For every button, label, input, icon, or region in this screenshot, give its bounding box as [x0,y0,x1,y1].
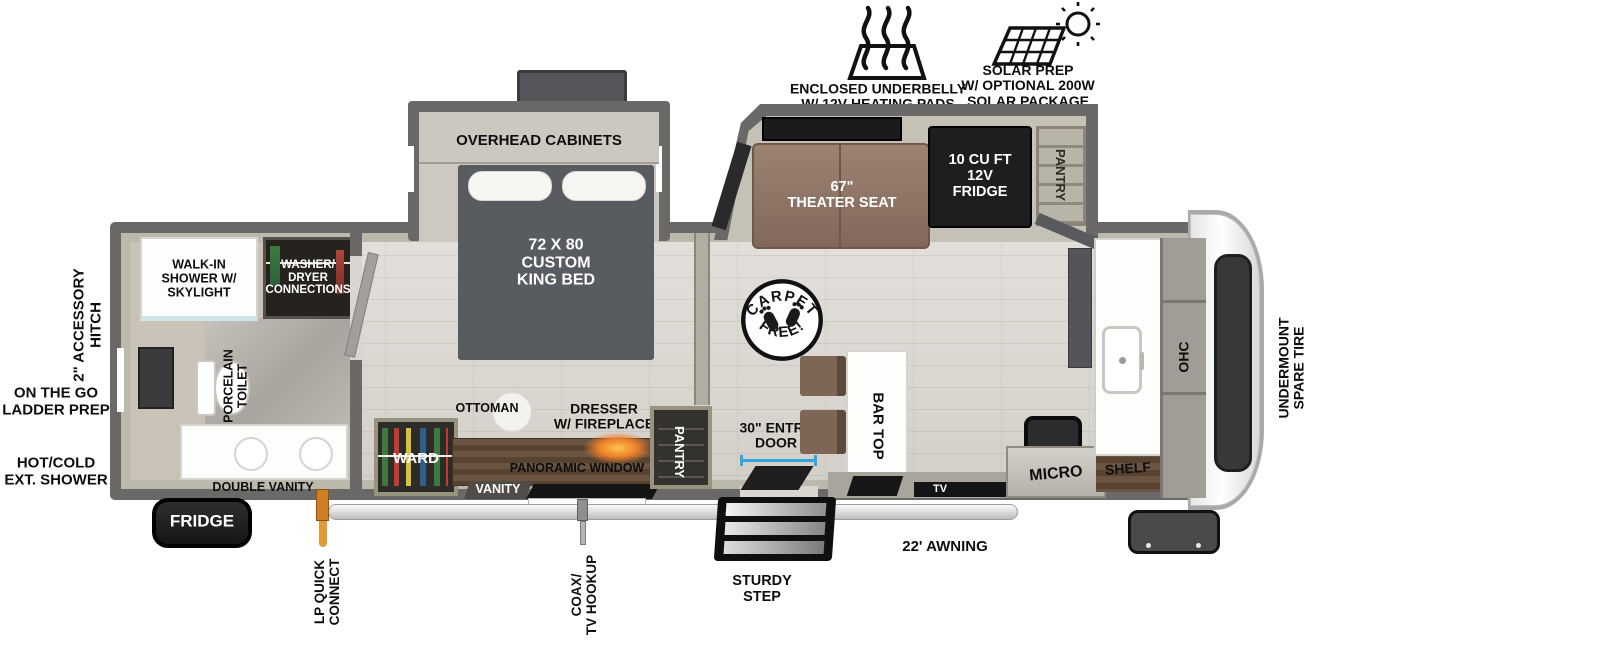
awning-label: 22' AWNING [902,539,988,556]
rear-window [117,348,124,412]
pillow-left [468,171,552,201]
walk-in-shower-label: WALK-IN SHOWER W/ SKYLIGHT [162,258,237,299]
sturdy-step-label: STURDY STEP [732,574,792,606]
theater-seat-label: 67" THEATER SEAT [787,180,896,212]
overhead-cabinets-label: OVERHEAD CABINETS [456,133,622,150]
bar-stool-2 [800,410,846,454]
ladder-prep-label: ON THE GO LADDER PREP [2,386,110,419]
toilet-tank [196,360,216,416]
entry-dim-tick-left [740,455,743,466]
accessory-hitch-label: 2" ACCESSORY HITCH [72,268,105,382]
ohc-divider-2 [1160,392,1206,395]
heating-pads-icon [828,4,938,82]
fireplace-glow [583,432,653,464]
slide-window-left [408,146,414,192]
tv-label: TV [933,483,947,495]
theater-slide-window-top [762,117,902,141]
floorplan-canvas: ENCLOSED UNDERBELLY W/ 12V HEATING PADS … [0,0,1600,649]
vanity-desk [526,484,660,499]
fridge-12v-label: 10 CU FT 12V FRIDGE [949,153,1012,201]
step-tread-2 [725,522,826,535]
washer-dryer-label: WASHER/ DRYER CONNECTIONS [266,259,351,297]
vanity-sink-right [299,437,333,471]
dresser-fireplace-label: DRESSER W/ FIREPLACE [554,402,654,433]
solar-prep-icon [988,2,1100,66]
front-cap-window [1214,254,1252,472]
ohc-label: OHC [1176,341,1191,372]
solar-prep-label: SOLAR PREP W/ OPTIONAL 200W SOLAR PACKAG… [961,63,1095,109]
lp-connector-icon [316,489,329,521]
pantry-slide-label: PANTRY [1053,149,1067,201]
entry-dim-tick-right [814,455,817,466]
awning-rail [328,504,1018,520]
bedroom-kitchen-wall [694,233,710,405]
exterior-fridge-label: FRIDGE [170,513,234,532]
carpet-free-stamp: CARPET FREE! [738,276,826,364]
lp-quick-connect-label: LP QUICK CONNECT [313,559,343,626]
rear-wall-panel [138,347,174,409]
counter-appliance [847,476,903,496]
wardrobe-label: WARD [393,451,439,468]
double-vanity-label: DOUBLE VANITY [212,481,313,495]
sink-drain [1119,357,1126,364]
entry-door-dimension-line [741,459,817,462]
ohc-divider-1 [1160,300,1206,303]
spare-tire-label: UNDERMOUNT SPARE TIRE [1277,317,1308,418]
ottoman-label: OTTOMAN [456,402,519,416]
toilet-label: PORCELAIN TOILET [222,349,250,423]
vanity-label: VANITY [476,483,521,497]
coax-tv-hookup-label: COAX/ TV HOOKUP [570,555,600,635]
bar-top-label: BAR TOP [869,392,886,459]
shelf-label: SHELF [1105,460,1152,479]
front-compartment [1128,510,1220,554]
panoramic-window-label: PANORAMIC WINDOW [510,462,644,476]
pantry-bedroom-label: PANTRY [672,426,686,478]
lp-connector-tip [319,521,327,547]
step-tread-1 [726,503,827,516]
vanity-sink-left [234,437,268,471]
tv-unit [914,482,1012,497]
king-bed-label: 72 X 80 CUSTOM KING BED [517,237,595,290]
tall-cabinet [1068,248,1092,368]
sink-faucet [1140,352,1144,370]
coax-connector-tip [580,521,586,545]
front-compartment-latch-2 [1196,543,1201,548]
step-tread-3 [724,541,825,554]
bar-stool-1 [800,356,846,396]
ext-shower-label: HOT/COLD EXT. SHOWER [4,456,107,489]
front-compartment-latch-1 [1146,543,1151,548]
pillow-right [562,171,646,201]
coax-connector-icon [577,499,588,521]
